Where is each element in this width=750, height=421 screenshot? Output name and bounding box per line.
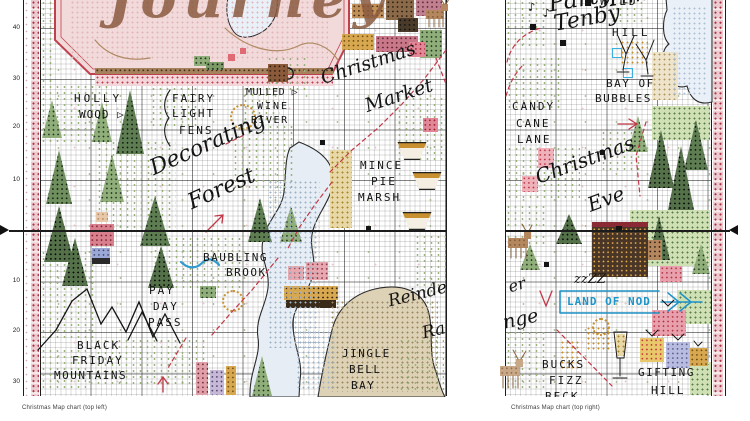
stitch-block <box>342 34 374 50</box>
stitch-cell <box>516 359 523 367</box>
map-label: BUCKS <box>542 358 585 371</box>
row-number: 10 <box>4 176 20 184</box>
stitch-block <box>652 310 686 336</box>
map-label: MOUNTAINS <box>54 369 127 382</box>
map-label: BECK <box>545 390 580 397</box>
stitch-scatter <box>505 0 545 50</box>
stitch-block <box>196 362 208 395</box>
map-label: LIGHT <box>172 107 215 120</box>
stitch-scatter <box>505 330 545 390</box>
stitch-block <box>398 18 418 32</box>
stitch-texture <box>268 180 320 348</box>
map-label: BELL <box>349 363 382 376</box>
stitch-block <box>690 348 708 366</box>
map-label: MARSH <box>358 191 401 204</box>
stitch-block <box>640 338 664 362</box>
map-label: LANE <box>517 133 552 146</box>
stitch-block <box>648 240 662 260</box>
stitch-block <box>206 62 224 70</box>
stitch-block <box>508 238 528 248</box>
stitch-cell <box>92 258 110 264</box>
panel-edge-line <box>711 0 712 396</box>
row-number: 10 <box>4 277 20 285</box>
stitch-texture <box>586 326 612 352</box>
decorative-border-left <box>31 0 39 396</box>
map-label: MINCE <box>360 159 403 172</box>
map-label: Journey <box>108 0 391 30</box>
stitch-block <box>200 286 216 298</box>
stitch-cell <box>524 231 531 239</box>
stitch-patch <box>616 334 625 356</box>
map-label: WILD <box>600 0 639 8</box>
map-label: ♪ <box>528 0 535 14</box>
stitch-cell <box>544 262 549 267</box>
map-label: BROOK <box>226 266 267 279</box>
map-label: CANE <box>516 117 551 130</box>
stitch-scatter <box>40 0 54 82</box>
stitch-block <box>660 266 682 282</box>
stitch-block <box>500 366 520 376</box>
map-label: zzZZ <box>574 272 606 287</box>
map-label: PAY <box>149 284 175 297</box>
map-label: FIZZ <box>549 374 584 387</box>
stitch-block <box>666 342 690 368</box>
map-label: MULLED ▷ <box>246 87 298 98</box>
map-label: FRIDAY <box>72 354 124 367</box>
stitch-block <box>592 227 648 277</box>
row-number: 20 <box>4 327 20 335</box>
stitch-texture <box>672 6 708 96</box>
stitch-cell <box>530 24 536 30</box>
map-label: FAIRY <box>172 92 215 105</box>
stitch-block <box>96 212 108 222</box>
wreath-icon <box>222 290 244 312</box>
map-label: HOLLY <box>74 92 122 105</box>
map-label: BAUBLING <box>203 251 268 264</box>
row-number: 30 <box>4 75 20 83</box>
stitch-cell <box>560 40 566 46</box>
map-label: BAY OF <box>606 77 655 90</box>
stitch-block <box>226 366 236 395</box>
stitch-scatter <box>40 250 94 342</box>
panel-edge-line <box>23 0 25 396</box>
row-number: 40 <box>4 24 20 32</box>
stitch-cell <box>441 4 448 11</box>
map-label: WINE <box>257 101 289 112</box>
map-label: HILL <box>612 26 651 39</box>
stitch-patch <box>330 150 352 228</box>
stitch-cell <box>228 54 235 61</box>
panel-edge-line <box>725 0 726 396</box>
border-prestrip <box>24 0 30 396</box>
map-label: GIFTING <box>638 366 695 379</box>
stitch-block <box>210 370 224 395</box>
row-number: 20 <box>4 123 20 131</box>
stitch-block <box>92 248 110 258</box>
map-label: PIE <box>371 175 397 188</box>
map-label: BAY <box>351 379 375 392</box>
stitch-block <box>90 224 114 246</box>
map-label: DAY <box>153 300 179 313</box>
map-label: WOOD ▷ <box>79 108 125 121</box>
chart-area: JourneyHOLLYWOOD ▷FAIRYLIGHTFENSMULLED ▷… <box>0 0 750 397</box>
stitch-block <box>268 64 288 82</box>
stitch-texture <box>296 330 336 390</box>
stitch-cell <box>320 140 325 145</box>
center-line <box>9 230 446 232</box>
center-marker-left <box>729 225 738 235</box>
decorative-border-right <box>713 0 723 396</box>
map-label: ♪ <box>543 6 550 20</box>
stitch-texture <box>330 300 438 392</box>
map-label: HILL <box>651 384 686 397</box>
map-label: BUBBLES <box>595 92 652 105</box>
map-label: BLACK <box>77 339 120 352</box>
map-label: LAND OF NOD <box>567 295 651 308</box>
map-label: PASS <box>148 316 183 329</box>
stitch-block <box>423 118 438 132</box>
caption-top-right: Christmas Map chart (top right) <box>511 405 600 411</box>
map-label: CANDY <box>512 100 555 113</box>
row-number: 30 <box>4 378 20 386</box>
stitch-block <box>426 10 444 19</box>
symbol-square <box>612 48 622 58</box>
stitch-cell <box>240 48 246 54</box>
center-marker-right <box>0 225 9 235</box>
caption-top-left: Christmas Map chart (top left) <box>22 405 107 411</box>
cross-stitch-chart-page: JourneyHOLLYWOOD ▷FAIRYLIGHTFENSMULLED ▷… <box>0 0 750 421</box>
stitch-texture <box>620 40 648 64</box>
center-line <box>505 230 730 232</box>
map-label: JINGLE <box>342 347 391 360</box>
